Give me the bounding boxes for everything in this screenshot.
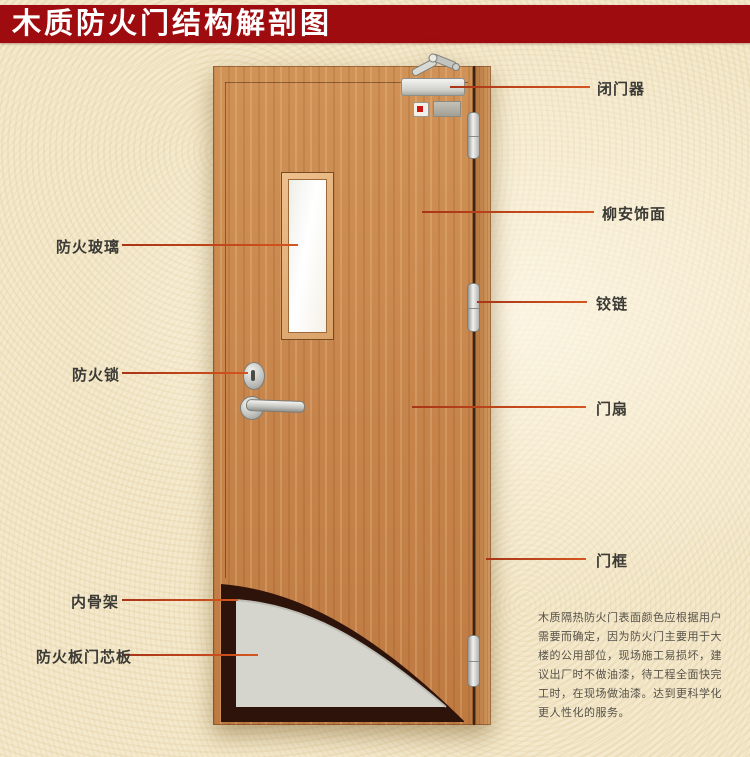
door-frame-strip xyxy=(475,66,491,725)
handle-lever xyxy=(246,399,305,413)
leader-line-fire-glass xyxy=(122,244,298,246)
note-line: 工时，在现场做油漆。达到更科学化 xyxy=(538,685,738,704)
hinge-top xyxy=(467,112,480,159)
leader-line-fire-board-core xyxy=(122,654,258,656)
callout-hinge: 铰链 xyxy=(596,293,628,314)
leader-line-door-closer xyxy=(450,86,590,88)
callout-fire-lock: 防火锁 xyxy=(72,364,120,385)
callout-door-leaf: 门扇 xyxy=(596,398,628,419)
leader-line-hinge xyxy=(477,301,587,303)
alarm-indicator xyxy=(413,102,429,117)
page-title: 木质防火门结构解剖图 xyxy=(0,5,750,43)
door-illustration xyxy=(213,66,491,725)
leader-line-door-leaf xyxy=(412,406,586,408)
note-line: 需要而确定，因为防火门主要用于大 xyxy=(538,628,738,647)
callout-lauan-veneer: 柳安饰面 xyxy=(602,203,666,224)
hinge-knuckle-line xyxy=(468,136,479,137)
description-note: 木质隔热防火门表面颜色应根据用户 需要而确定，因为防火门主要用于大 楼的公用部位… xyxy=(538,609,738,723)
callout-inner-skeleton: 内骨架 xyxy=(71,591,119,612)
keyhole xyxy=(251,370,255,381)
note-line: 楼的公用部位，现场施工易损坏，建 xyxy=(538,647,738,666)
callout-door-frame: 门框 xyxy=(596,550,628,571)
leader-line-inner-skeleton xyxy=(122,599,238,601)
fire-glass-pane xyxy=(288,179,327,333)
note-line: 议出厂时不做油漆，待工程全面快完 xyxy=(538,666,738,685)
alarm-indicator-light xyxy=(417,106,423,112)
mounting-plate xyxy=(433,101,461,117)
title-banner: 木质防火门结构解剖图 xyxy=(0,5,750,43)
fire-lock-cylinder xyxy=(243,362,265,390)
callout-fire-board-core: 防火板门芯板 xyxy=(36,646,132,667)
hinge-knuckle-line xyxy=(468,308,479,309)
poster: 木质防火门结构解剖图 xyxy=(0,0,750,757)
vision-window xyxy=(282,173,333,339)
callout-door-closer: 闭门器 xyxy=(597,78,645,99)
callout-fire-glass: 防火玻璃 xyxy=(56,236,120,257)
hinge-middle xyxy=(467,283,480,332)
fire-board-core-shape xyxy=(236,600,446,707)
leader-line-fire-lock xyxy=(122,372,248,374)
leaf-inset-line-vertical xyxy=(225,82,226,578)
leader-line-lauan-veneer xyxy=(422,211,594,213)
note-line: 更人性化的服务。 xyxy=(538,704,738,723)
cutaway-section xyxy=(213,578,473,725)
note-line: 木质隔热防火门表面颜色应根据用户 xyxy=(538,609,738,628)
leader-line-door-frame xyxy=(486,558,586,560)
